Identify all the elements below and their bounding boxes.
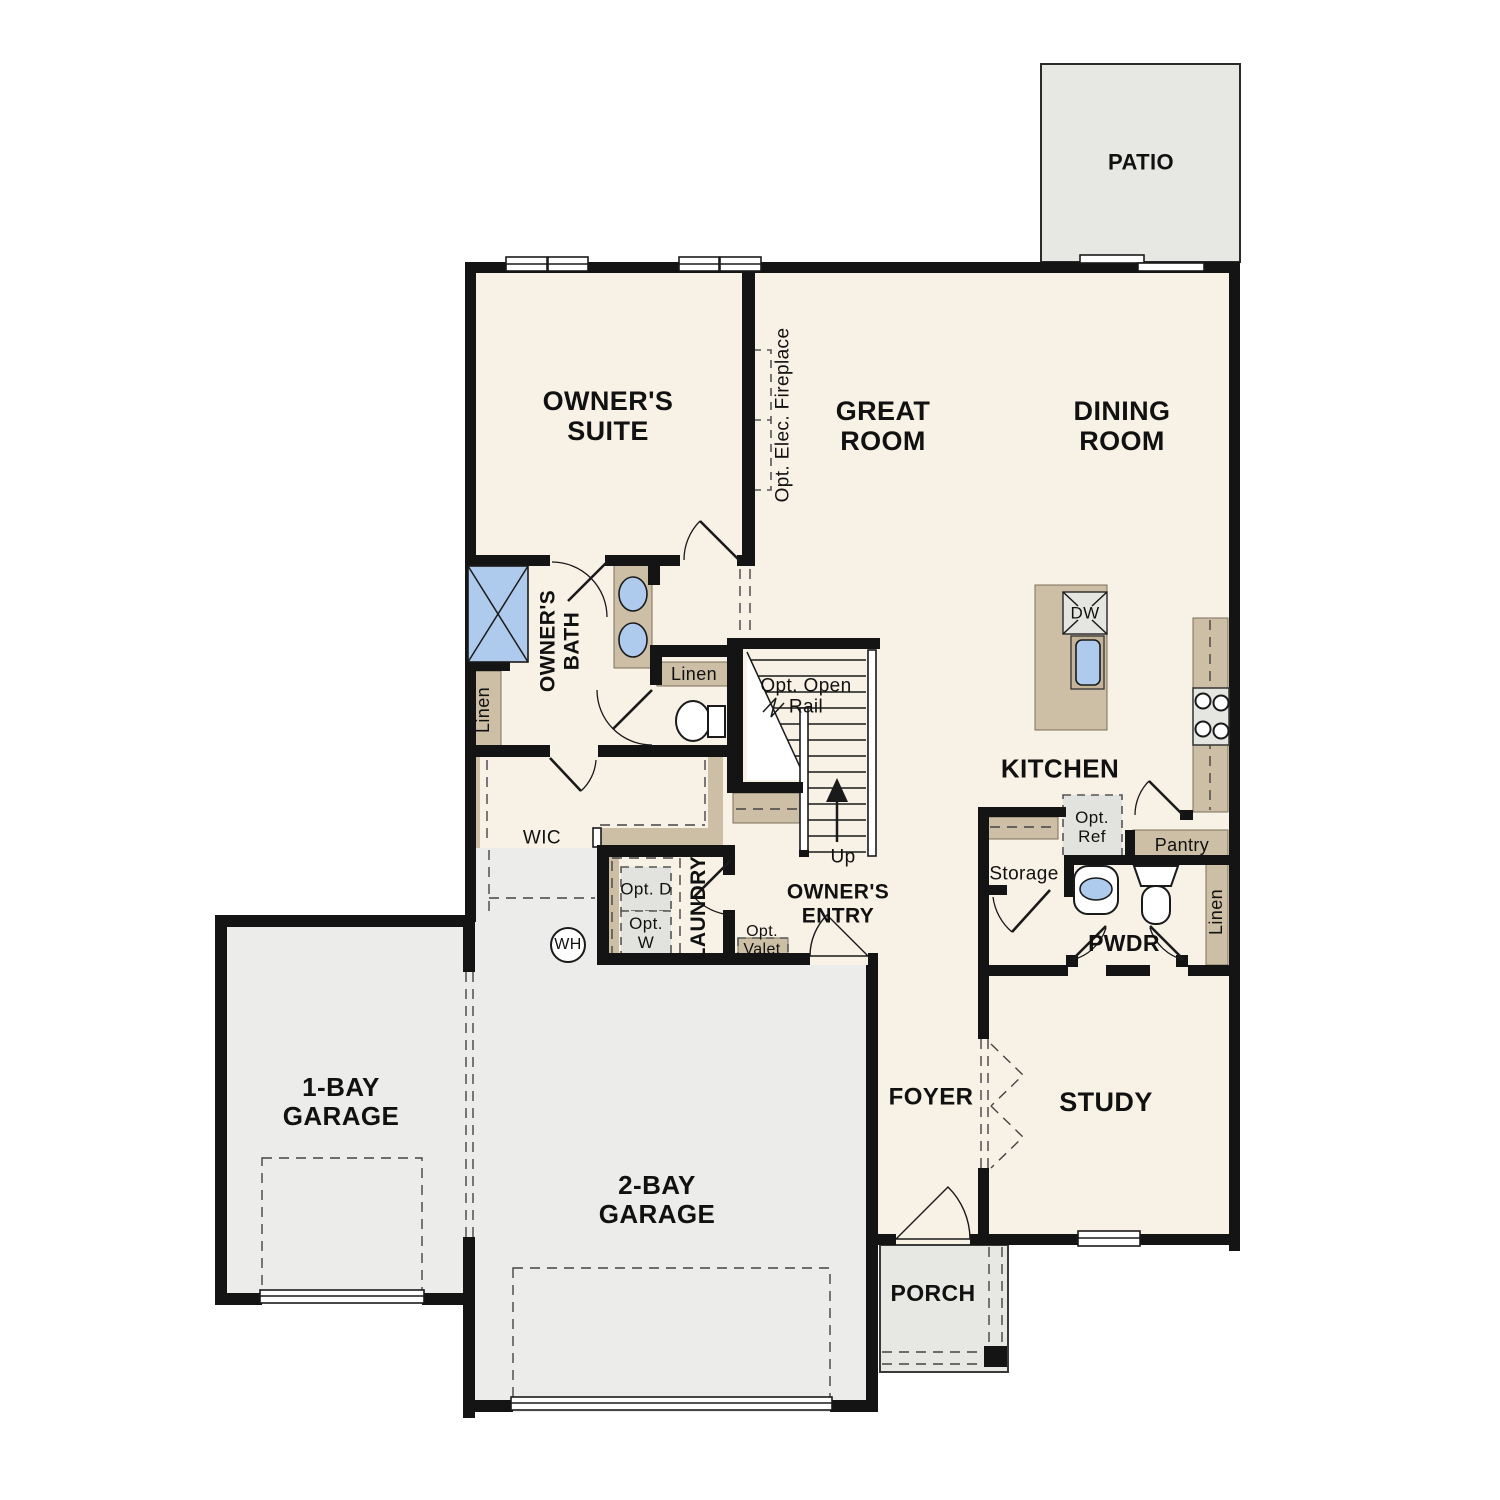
room-label-owners-entry: OWNER'S ENTRY: [773, 880, 903, 927]
label-linen-pwdr: Linen: [1206, 877, 1226, 947]
wall-segment: [1229, 262, 1240, 1251]
wall-segment: [465, 745, 550, 757]
room-label-study: STUDY: [1026, 1087, 1186, 1117]
burner: [1214, 724, 1229, 739]
wall-segment: [215, 915, 227, 1305]
wic-shelf-right: [708, 757, 723, 830]
stair-newel: [799, 850, 809, 857]
wall-segment: [723, 845, 735, 875]
wall-segment: [1125, 830, 1135, 857]
floor-plan-drawing: [0, 0, 1500, 1500]
wall-segment: [605, 555, 680, 566]
wall-segment: [1140, 1234, 1240, 1245]
room-label-great-room: GREAT ROOM: [808, 396, 958, 456]
pwdr-sink: [1080, 878, 1112, 900]
label-storage: Storage: [969, 863, 1079, 884]
room-label-dining-room: DINING ROOM: [1047, 396, 1197, 456]
toilet-bowl: [676, 701, 710, 741]
wall-segment: [727, 638, 880, 649]
wall-segment: [1106, 965, 1150, 976]
room-label-garage-1bay: 1-BAY GARAGE: [251, 1073, 431, 1131]
label-linen-left: Linen: [473, 675, 493, 745]
wall-segment: [727, 638, 743, 790]
floor-plan: PATIO OWNER'S SUITE GREAT ROOM DINING RO…: [0, 0, 1500, 1500]
wall-segment: [868, 953, 878, 965]
wall-segment: [727, 782, 803, 793]
wall-segment: [978, 977, 989, 1039]
room-label-owners-suite: OWNER'S SUITE: [513, 386, 703, 446]
room-label-laundry: LAUNDRY: [687, 843, 711, 973]
wall-segment: [978, 807, 1066, 817]
wall-segment: [463, 1237, 475, 1418]
room-label-porch: PORCH: [873, 1281, 993, 1307]
room-label-kitchen: KITCHEN: [950, 754, 1170, 783]
wall-segment: [1064, 855, 1240, 865]
wall-segment: [983, 885, 1007, 895]
porch-post: [984, 1346, 1007, 1367]
label-up: Up: [818, 846, 868, 867]
burner: [1196, 722, 1211, 737]
patio-slider-leaf: [1138, 263, 1204, 271]
burner: [1214, 696, 1229, 711]
label-opt-ref: Opt. Ref: [1063, 808, 1121, 846]
wall-segment: [650, 645, 740, 657]
stair-base-cabinet: [733, 793, 801, 823]
wic-shelf-cap: [593, 828, 601, 847]
storage-shelf: [988, 817, 1058, 839]
wall-segment: [866, 965, 878, 1412]
label-dishwasher: DW: [1063, 603, 1107, 622]
wall-segment: [597, 845, 735, 857]
wall-segment: [465, 555, 550, 566]
label-pantry: Pantry: [1137, 835, 1227, 855]
room-label-pwdr: PWDR: [1064, 931, 1184, 957]
wall-segment: [215, 1293, 262, 1305]
room-label-garage-2bay: 2-BAY GARAGE: [567, 1171, 747, 1229]
wall-segment: [970, 1234, 1078, 1245]
label-opt-dryer: Opt. D: [620, 879, 672, 898]
patio-slider-leaf: [1080, 255, 1144, 263]
stair-rail-right: [868, 650, 876, 856]
label-water-heater: WH: [548, 936, 588, 954]
room-label-patio: PATIO: [1066, 151, 1216, 176]
wall-segment: [742, 262, 755, 566]
wall-segment: [648, 555, 660, 585]
label-opt-open-rail: Opt. Open Rail: [749, 676, 864, 719]
wall-segment: [1188, 965, 1240, 976]
label-opt-valet: Opt. Valet: [733, 923, 791, 959]
wall-segment: [463, 1400, 513, 1412]
wall-segment: [597, 845, 609, 965]
wall-segment: [978, 1168, 989, 1234]
label-opt-washer: Opt. W: [620, 914, 672, 952]
label-linen-hall: Linen: [659, 664, 729, 684]
room-label-owners-bath: OWNER'S BATH: [536, 581, 583, 701]
wall-segment: [598, 745, 743, 757]
wall-segment: [978, 965, 1068, 976]
burner: [1196, 694, 1211, 709]
room-label-foyer: FOYER: [861, 1085, 1001, 1112]
wall-segment: [463, 915, 475, 972]
toilet-tank: [708, 706, 725, 737]
pwdr-toilet-tank: [1134, 866, 1178, 886]
island-sink: [1076, 640, 1100, 685]
wall-segment: [215, 915, 475, 927]
vanity-sink: [619, 577, 647, 611]
pwdr-toilet-bowl: [1142, 886, 1170, 924]
vanity-sink: [619, 623, 647, 657]
label-opt-elec-fireplace: Opt. Elec. Fireplace: [772, 310, 793, 520]
room-label-wic: WIC: [502, 827, 582, 848]
